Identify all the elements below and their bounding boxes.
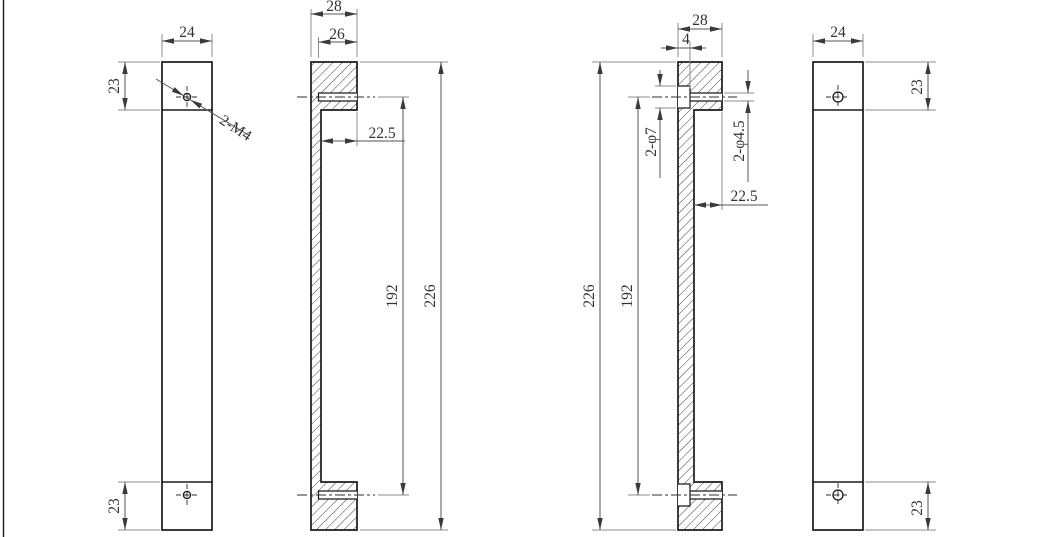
thread-callout-label: 2-M4: [216, 112, 254, 145]
dim-bottom-offset-label: 23: [106, 498, 123, 514]
drawing-canvas: 24 23 23 2-M4: [0, 0, 1044, 537]
screw-hole-bottom: [176, 484, 198, 506]
view-front-right: 24 23 23: [813, 24, 936, 530]
dim-boss-length: 22.5: [321, 112, 405, 146]
dim-counterbore-depth-label: 4: [682, 31, 690, 48]
dim-width-label: 28: [692, 12, 708, 29]
dim-width: 24: [813, 24, 863, 57]
view-section-plate: 28 4 2-φ7 2-φ4.5: [581, 12, 768, 530]
dim-overall-length-label: 226: [422, 284, 439, 308]
through-hole-bottom: [826, 483, 850, 507]
tapped-hole-top: [297, 93, 375, 101]
dim-counterbore-dia: 2-φ7: [643, 70, 676, 178]
part-outline: [162, 62, 212, 530]
screw-hole-top: [176, 86, 198, 108]
view-section-handle: 28 26 22.5 192: [297, 0, 448, 530]
dim-hole-spacing: 192: [378, 97, 409, 495]
dim-overall-length-label: 226: [581, 284, 598, 308]
dim-top-offset-label: 23: [106, 78, 123, 94]
dim-bottom-offset: 23: [865, 482, 936, 530]
section-profile: [311, 62, 357, 530]
dim-through-hole-dia-label: 2-φ4.5: [731, 120, 748, 161]
dim-bottom-offset-label: 23: [909, 500, 926, 516]
thread-callout: 2-M4: [156, 79, 255, 145]
dim-boss-length-label: 22.5: [368, 125, 395, 142]
drawing-sheet: 24 23 23 2-M4: [0, 0, 1044, 537]
dim-hole-depth-label: 26: [329, 26, 345, 43]
tapped-hole-bottom: [297, 491, 375, 499]
dim-width-label: 24: [179, 24, 195, 41]
view-front-left: 24 23 23 2-M4: [106, 24, 255, 530]
dim-width: 24: [162, 24, 212, 57]
dim-width-label: 24: [830, 24, 846, 41]
dim-width-label: 28: [326, 0, 342, 15]
dim-hole-spacing-label: 192: [384, 284, 401, 307]
dim-hole-depth: 26: [319, 26, 358, 58]
dim-counterbore-dia-label: 2-φ7: [643, 127, 660, 157]
dim-top-offset: 23: [106, 62, 160, 110]
dim-hole-spacing-label: 192: [619, 284, 636, 307]
through-hole-top: [826, 85, 850, 109]
part-outline: [813, 62, 863, 530]
dim-boss-length-label: 22.5: [730, 188, 757, 205]
dim-top-offset: 23: [865, 62, 936, 110]
section-profile: [678, 62, 722, 530]
dim-top-offset-label: 23: [909, 79, 926, 95]
dim-bottom-offset: 23: [106, 482, 160, 530]
dim-through-hole-dia: 2-φ4.5: [724, 70, 754, 182]
